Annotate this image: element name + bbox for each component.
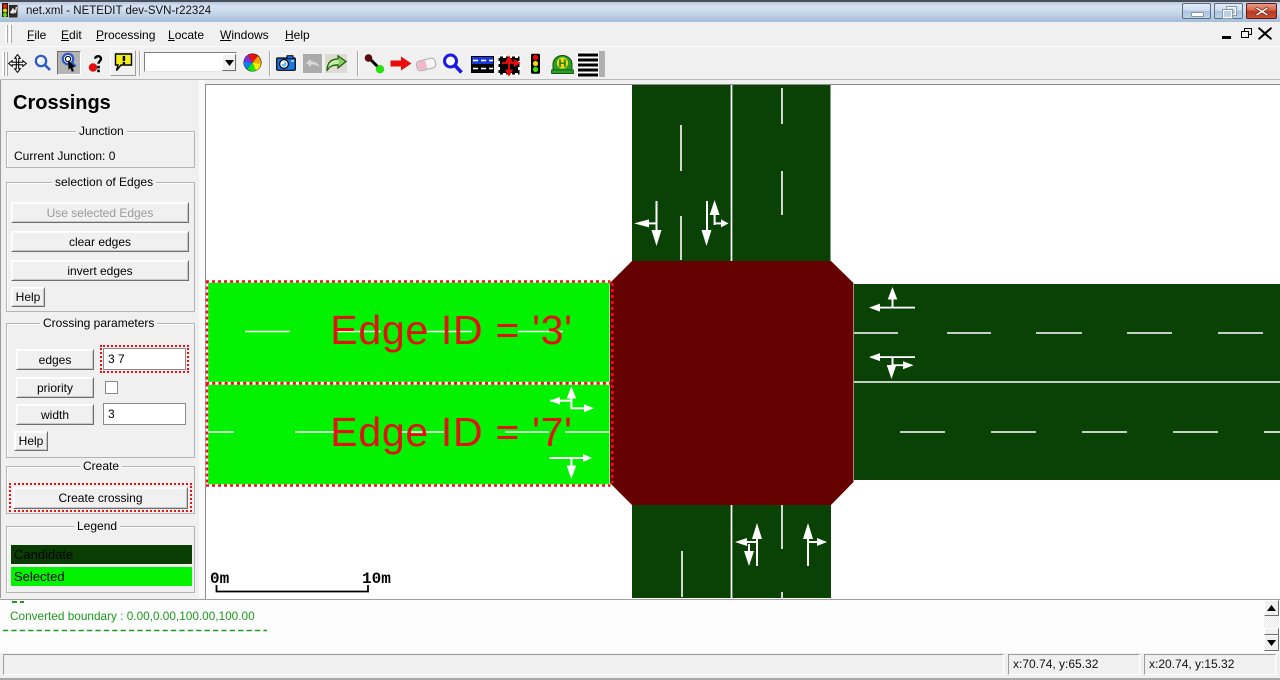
svg-text:0m: 0m <box>210 570 230 588</box>
svg-text:10m: 10m <box>362 570 391 588</box>
svg-text:Edge ID = '7': Edge ID = '7' <box>330 409 572 455</box>
svg-text:H: H <box>559 58 567 70</box>
svg-text:Edge ID = '3': Edge ID = '3' <box>330 307 572 353</box>
